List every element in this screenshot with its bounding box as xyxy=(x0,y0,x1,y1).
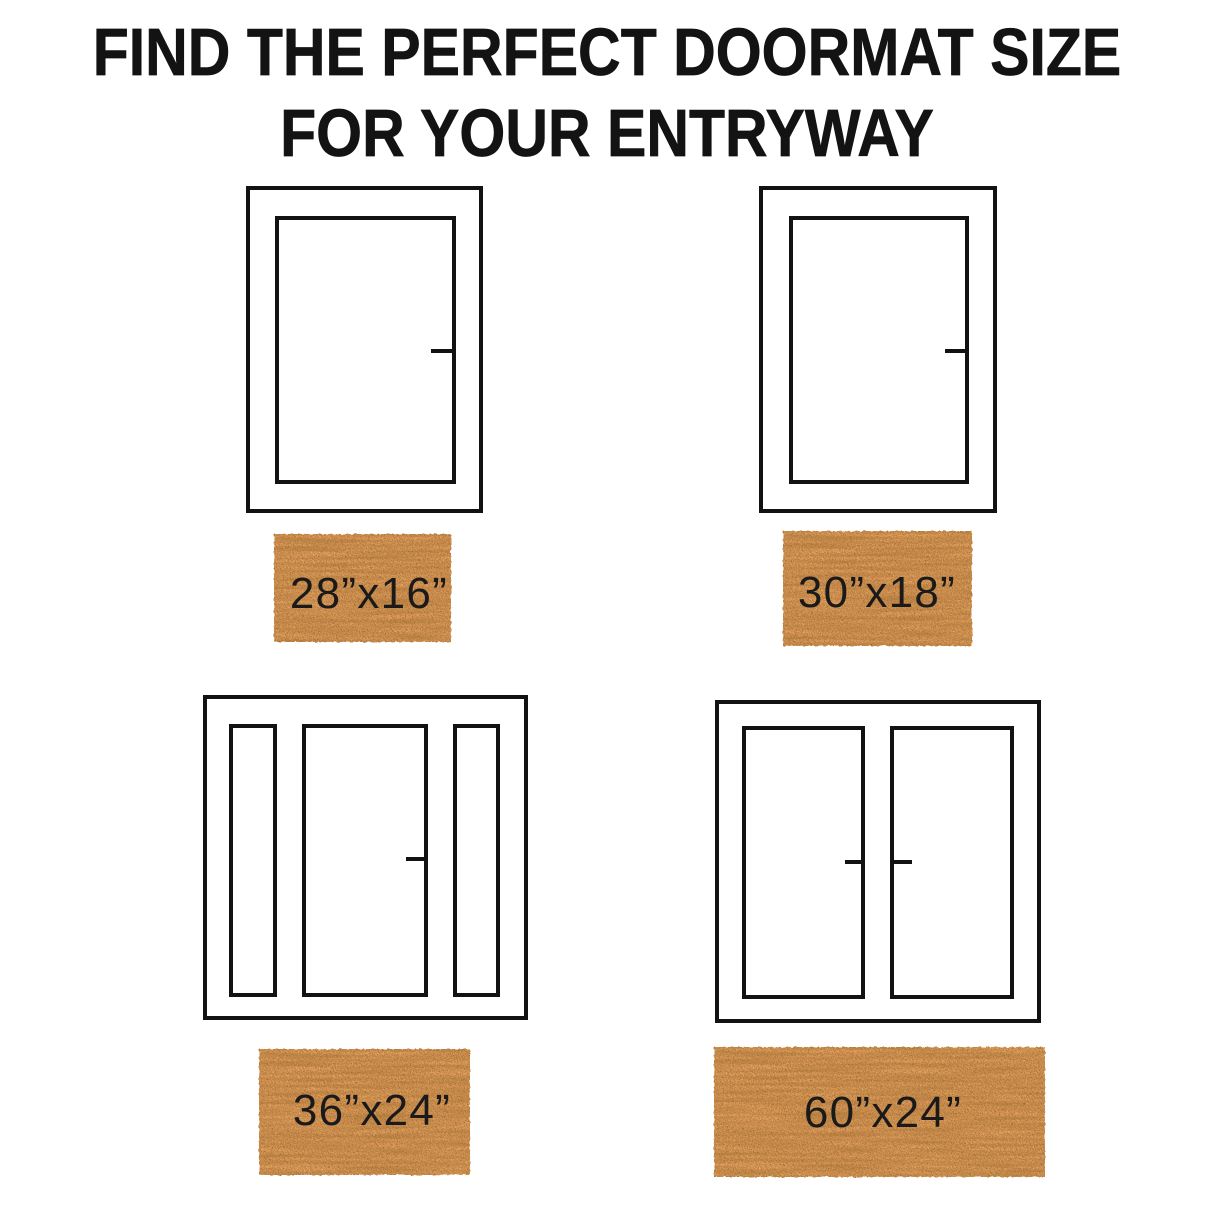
svg-text:60”x24”: 60”x24” xyxy=(804,1088,962,1137)
svg-text:28”x16”: 28”x16” xyxy=(290,569,448,618)
svg-text:30”x18”: 30”x18” xyxy=(798,568,956,617)
svg-text:36”x24”: 36”x24” xyxy=(293,1086,451,1135)
